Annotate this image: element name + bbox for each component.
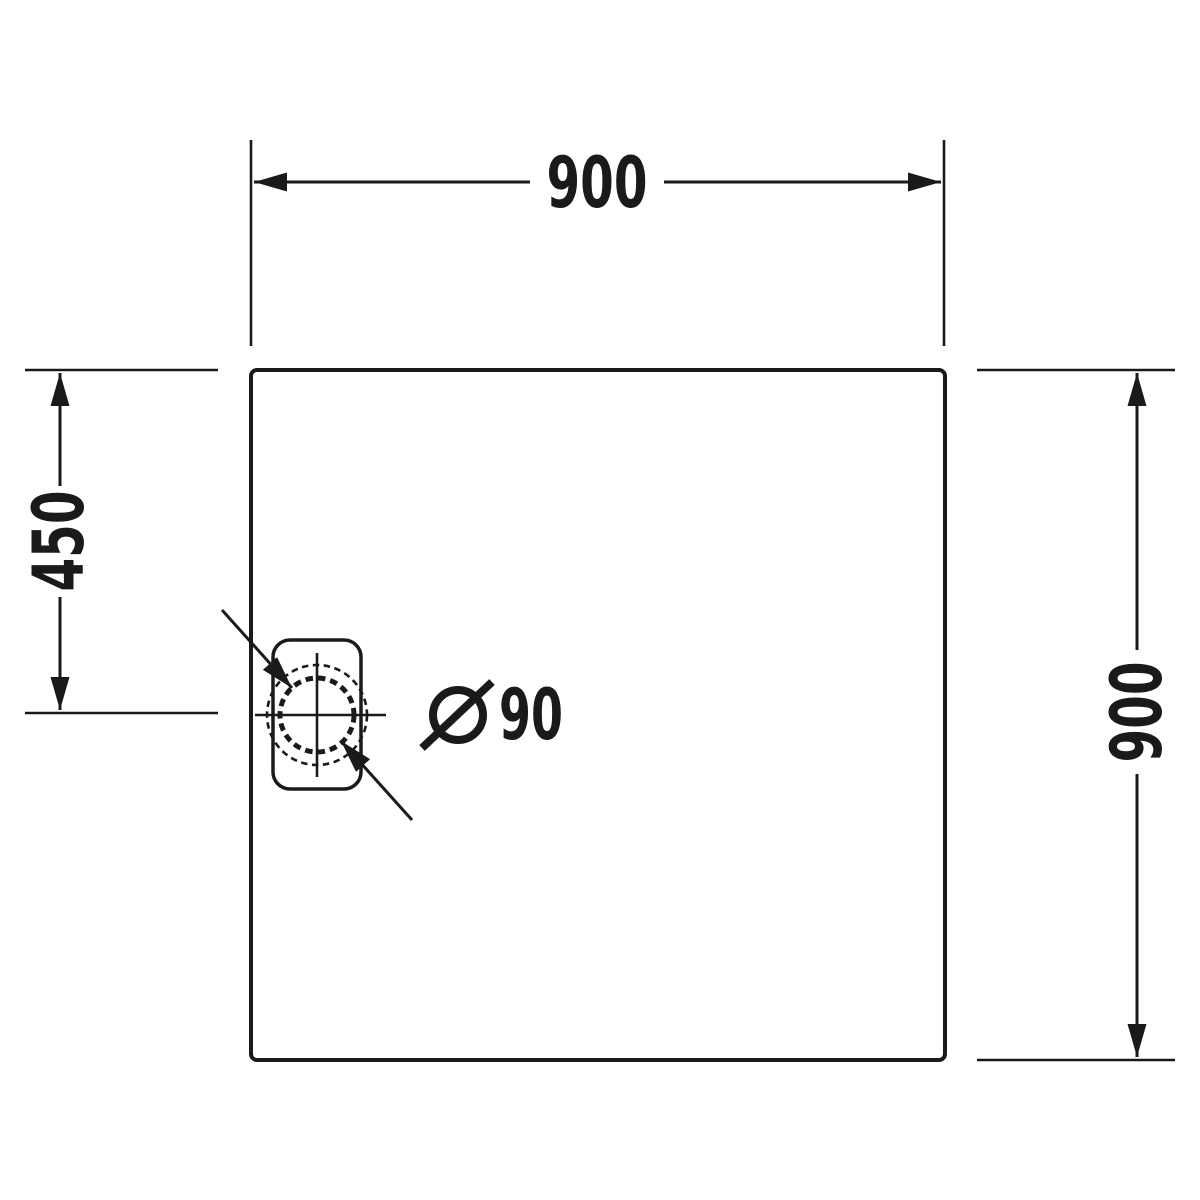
drain-diameter-label: 90 — [422, 674, 563, 756]
dimension-right-height: 900 — [977, 370, 1178, 1060]
drain-diameter-value: 90 — [499, 674, 563, 756]
dimension-top-width: 900 — [251, 140, 944, 346]
technical-drawing-page: 900 450 900 — [0, 0, 1200, 1200]
diameter-symbol-icon — [422, 682, 492, 748]
dimension-value-left-drain-offset: 450 — [18, 491, 100, 592]
dimension-value-top-width: 900 — [547, 142, 648, 224]
dimension-value-right-height: 900 — [1096, 662, 1178, 763]
shower-tray-dimension-drawing: 900 450 900 — [0, 0, 1200, 1200]
drain-leader-arrow-lower — [341, 741, 412, 820]
dimension-left-drain-offset: 450 — [18, 370, 218, 713]
drain-leader-arrow-upper — [222, 610, 292, 688]
